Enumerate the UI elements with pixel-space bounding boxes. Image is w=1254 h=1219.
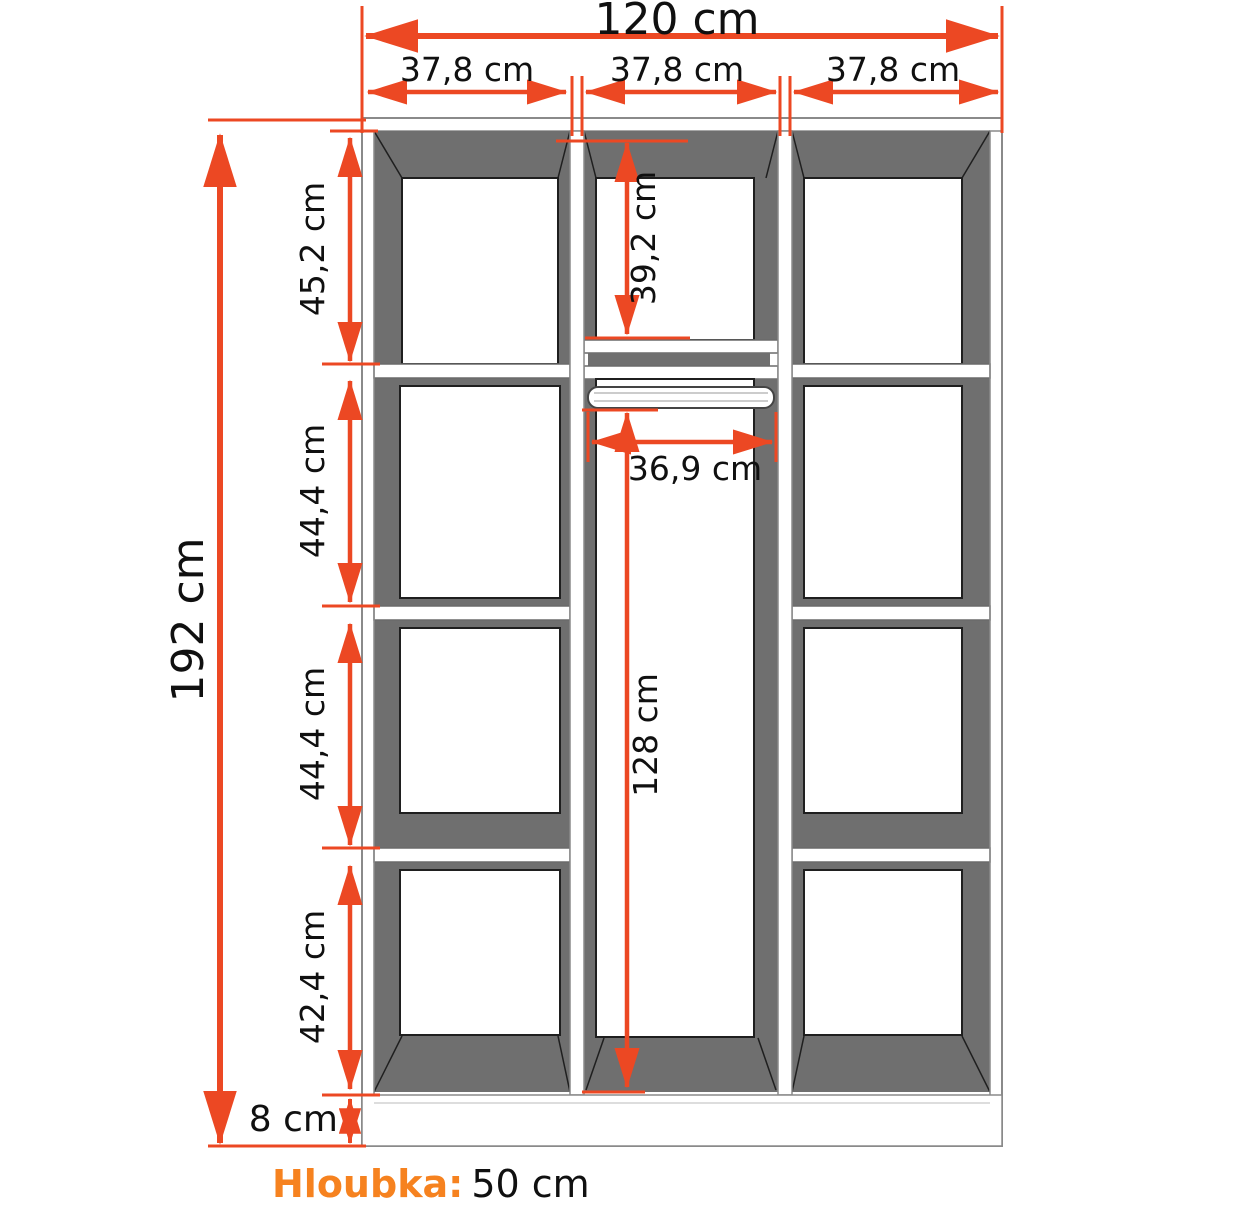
hanging-space-height-label: 128 cm xyxy=(626,673,665,797)
compartment-1-height-label: 45,2 cm xyxy=(293,182,332,316)
depth-label: Hloubka: xyxy=(272,1162,463,1206)
middle-panel xyxy=(584,366,778,379)
shelf xyxy=(374,606,570,620)
diagram-canvas: 120 cm 37,8 cm 37,8 cm 37,8 cm 192 cm 45… xyxy=(0,0,1254,1219)
shelf xyxy=(374,848,570,862)
section-width-1-label: 37,8 cm xyxy=(400,50,534,89)
shelf xyxy=(792,364,990,378)
left-column-compartments xyxy=(374,131,570,1092)
shelf xyxy=(792,848,990,862)
shelf xyxy=(374,364,570,378)
compartment-2-height-label: 44,4 cm xyxy=(293,424,332,558)
right-column-compartments xyxy=(792,131,990,1092)
shelf xyxy=(792,606,990,620)
compartment-4-height-label: 42,4 cm xyxy=(293,910,332,1044)
wardrobe-drawing xyxy=(362,118,1002,1146)
middle-shelf xyxy=(584,340,778,353)
divider-left xyxy=(570,131,584,1095)
clothes-rail xyxy=(588,387,774,408)
depth-note: Hloubka:50 cm xyxy=(272,1162,590,1206)
section-width-3-label: 37,8 cm xyxy=(826,50,960,89)
plinth-height-label: 8 cm xyxy=(249,1099,338,1140)
wardrobe-dimension-diagram: 120 cm 37,8 cm 37,8 cm 37,8 cm 192 cm 45… xyxy=(0,0,1254,1219)
depth-value: 50 cm xyxy=(471,1162,589,1206)
total-height-label: 192 cm xyxy=(163,537,214,702)
total-width-label: 120 cm xyxy=(594,0,759,45)
middle-shelf-height-label: 39,2 cm xyxy=(624,171,663,305)
section-width-2-label: 37,8 cm xyxy=(610,50,744,89)
middle-column-compartment xyxy=(584,131,778,1092)
rail-width-label: 36,9 cm xyxy=(628,449,762,488)
divider-right xyxy=(778,131,792,1095)
compartment-3-height-label: 44,4 cm xyxy=(293,667,332,801)
